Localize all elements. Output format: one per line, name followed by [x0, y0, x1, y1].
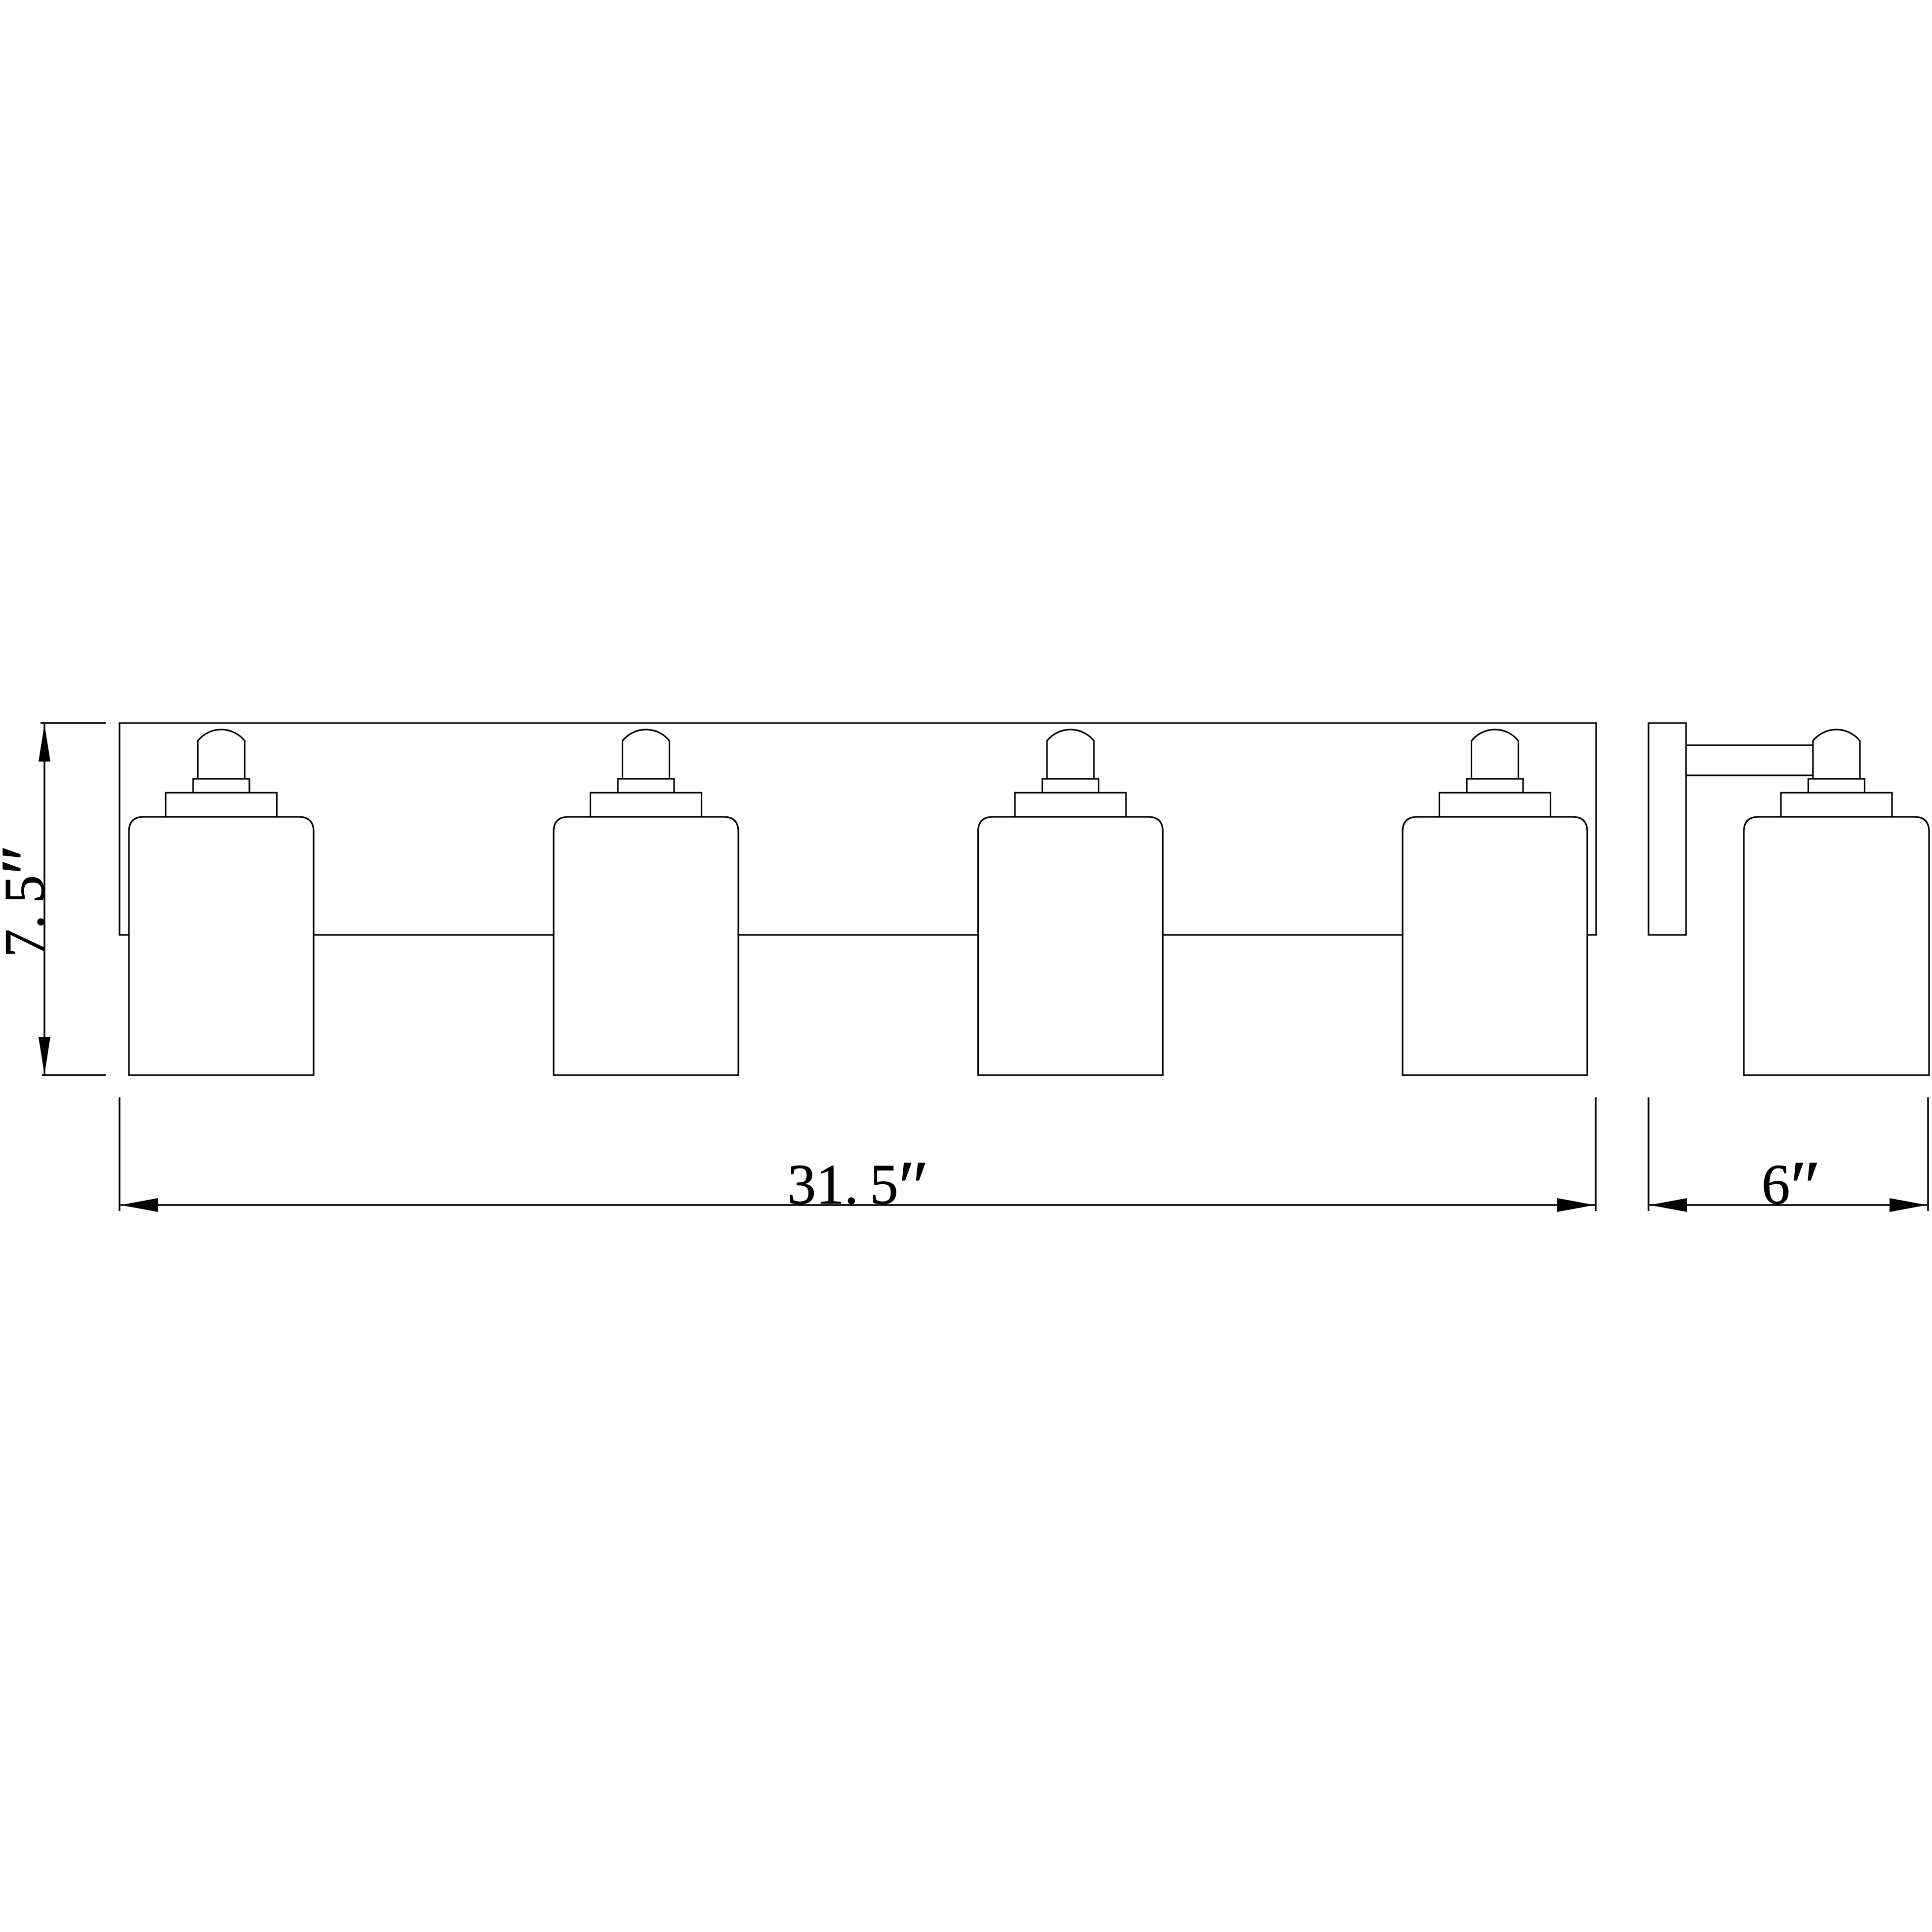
- svg-text:31. 5″: 31. 5″: [788, 1146, 929, 1228]
- svg-text:6″: 6″: [1762, 1146, 1821, 1228]
